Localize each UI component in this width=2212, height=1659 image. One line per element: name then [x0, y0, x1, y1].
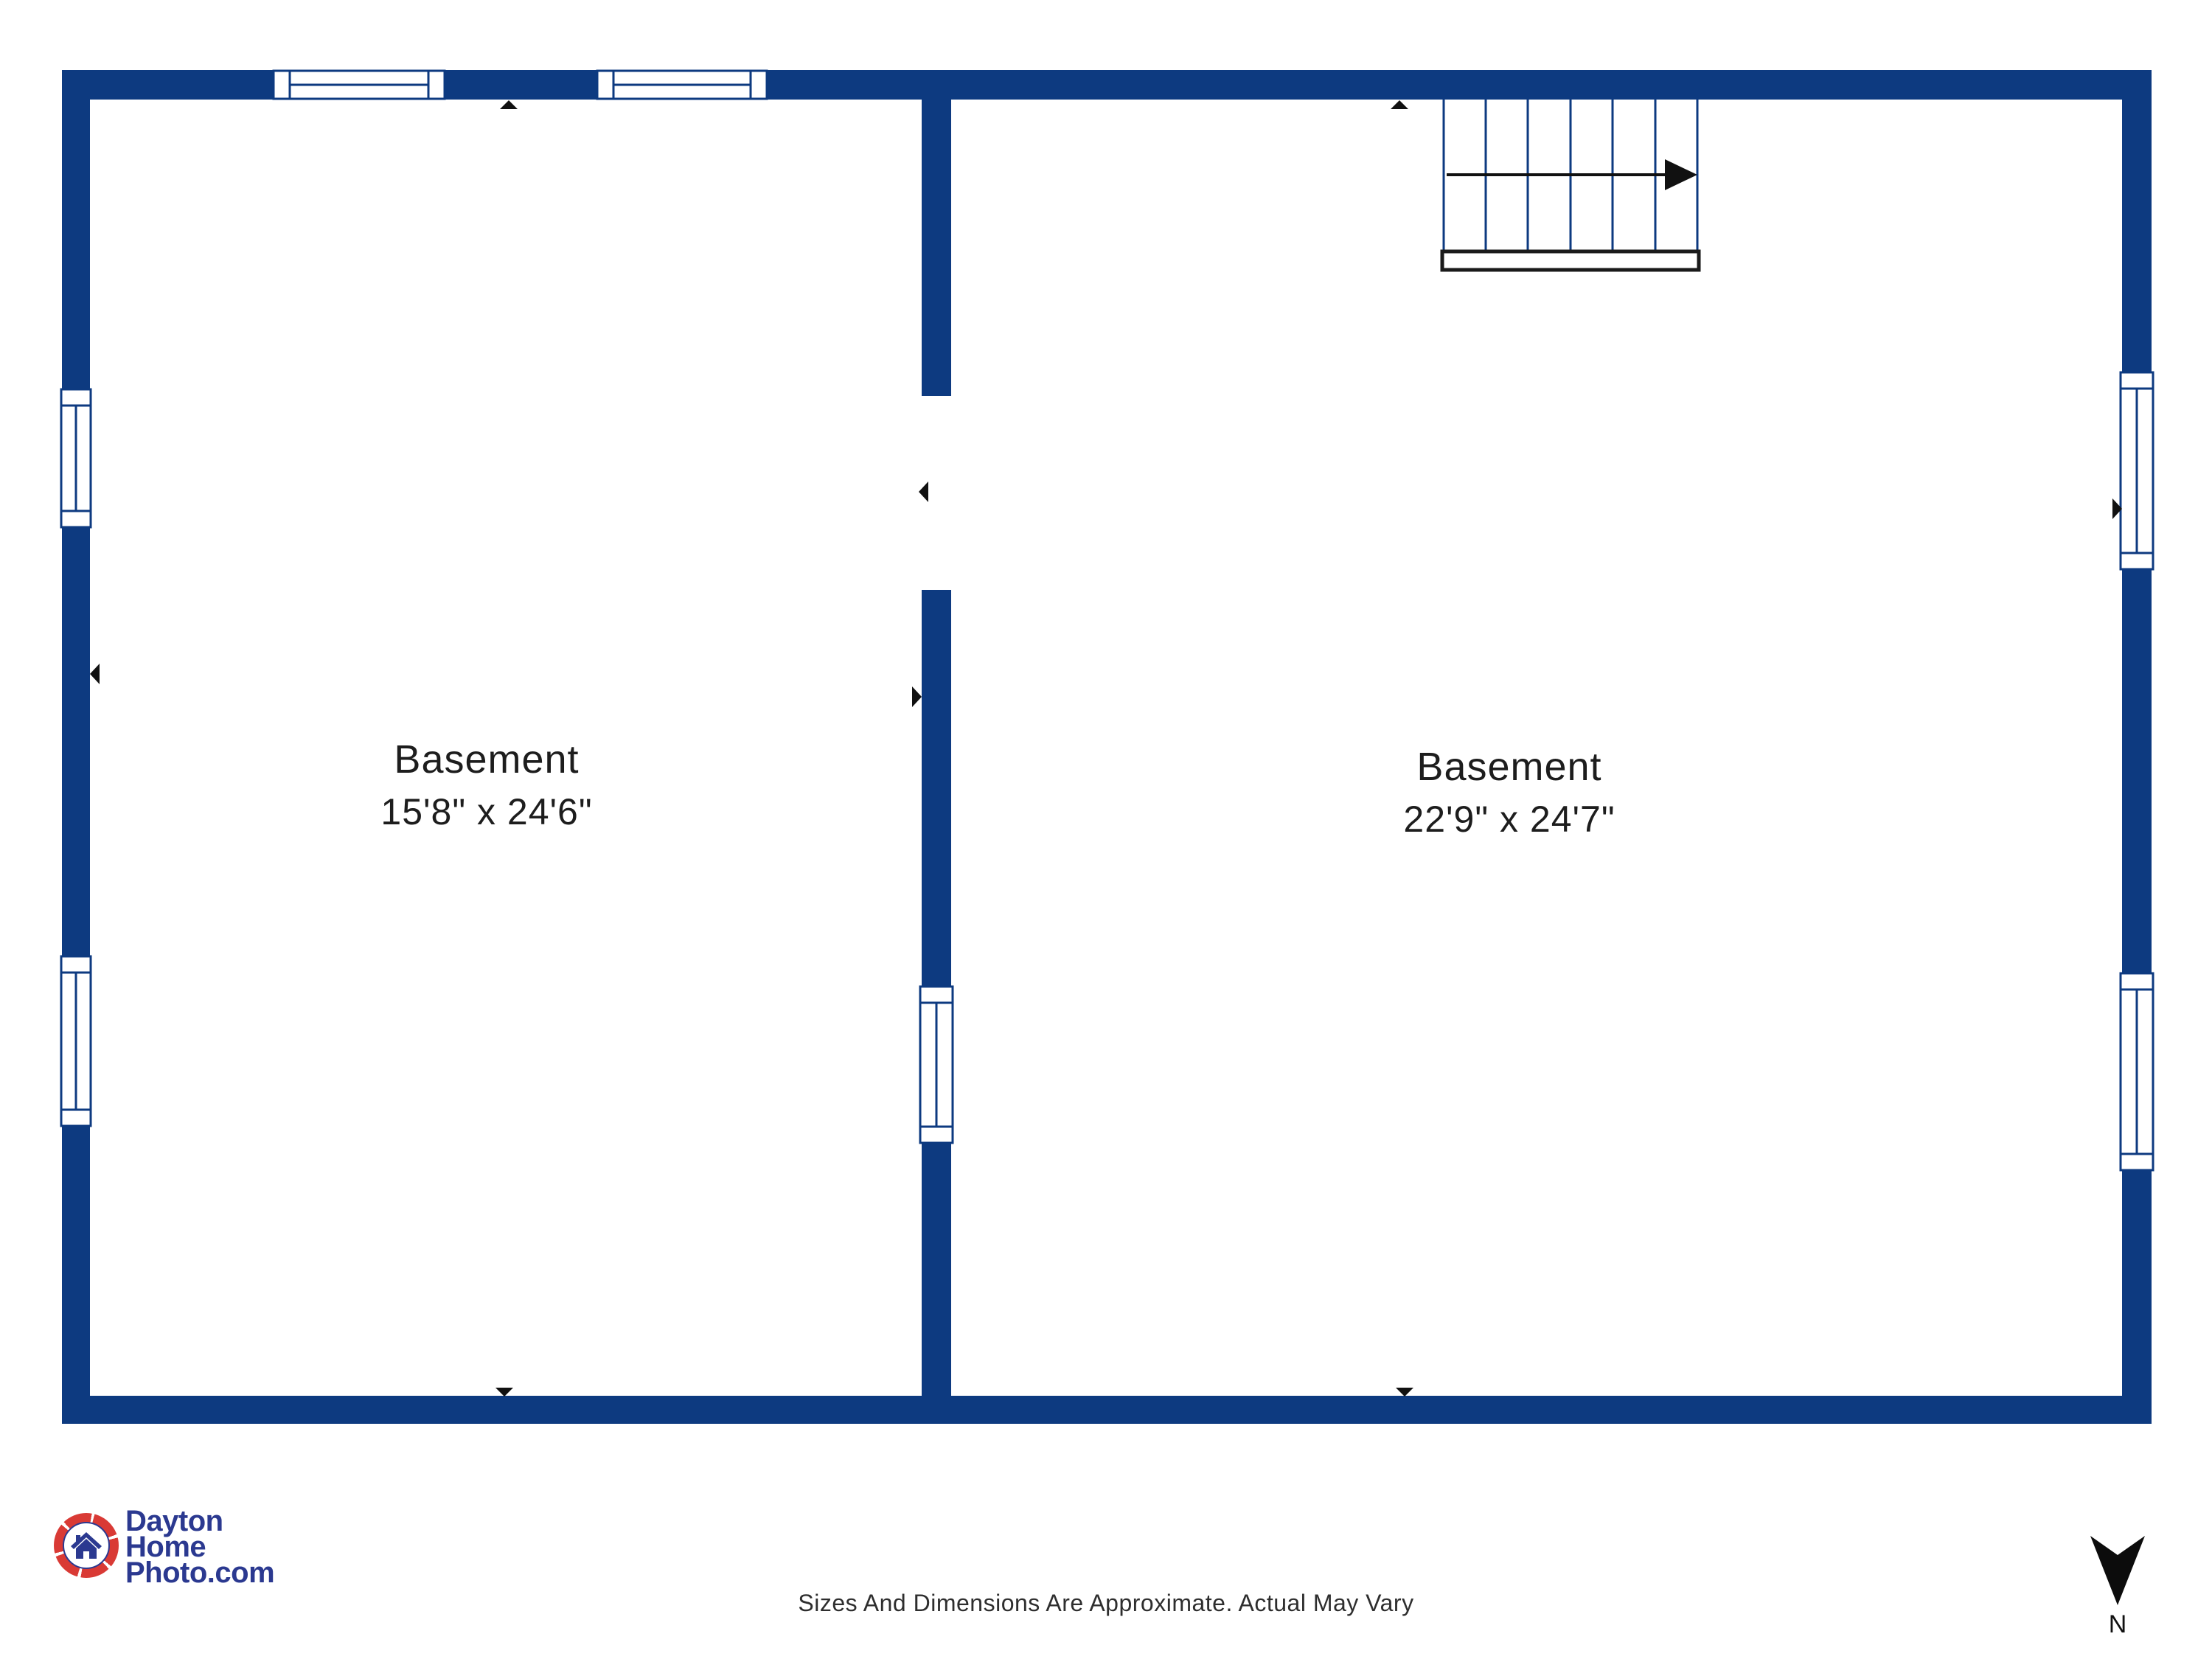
compass-label: N — [2089, 1610, 2146, 1639]
wall-right — [2122, 70, 2152, 1424]
staircase-icon — [1442, 100, 1699, 270]
room-labels: Basement 15'8" x 24'6" Basement 22'9" x … — [380, 737, 1615, 840]
dayton-home-photo-logo: Dayton Home Photo.com — [54, 1509, 305, 1590]
door-marker-left-icon — [90, 664, 100, 684]
door-marker-down-icon — [495, 1388, 513, 1397]
logo-line-3: Photo.com — [125, 1560, 274, 1586]
window-icon — [274, 71, 445, 99]
logo-wordmark: Dayton Home Photo.com — [125, 1509, 274, 1586]
room-2-dimensions: 22'9" x 24'7" — [1403, 799, 1615, 840]
window-icon — [920, 987, 953, 1143]
window-icon — [597, 71, 767, 99]
north-compass: N — [2089, 1536, 2146, 1639]
stair-direction-arrow-icon — [1447, 159, 1697, 190]
wall-middle-upper — [922, 70, 951, 396]
windows — [61, 71, 2153, 1170]
window-icon — [2121, 973, 2153, 1170]
door-marker-up-icon — [500, 100, 518, 109]
house-icon — [63, 1522, 110, 1569]
room-1-dimensions: 15'8" x 24'6" — [380, 791, 592, 832]
wall-left — [62, 70, 90, 1424]
floor-plan-page: Basement 15'8" x 24'6" Basement 22'9" x … — [0, 0, 2212, 1659]
window-icon — [61, 956, 91, 1126]
door-marker-up-icon — [1391, 100, 1408, 109]
stair-landing — [1442, 251, 1699, 270]
disclaimer-text: Sizes And Dimensions Are Approximate. Ac… — [0, 1590, 2212, 1617]
floor-plan-drawing: Basement 15'8" x 24'6" Basement 22'9" x … — [0, 0, 2212, 1659]
window-icon — [61, 389, 91, 527]
room-1-name: Basement — [394, 737, 579, 782]
room-2-name: Basement — [1416, 745, 1601, 789]
window-icon — [2121, 372, 2153, 569]
walls — [62, 70, 2152, 1424]
door-marker-down-icon — [1396, 1388, 1413, 1397]
door-marker-left-icon — [919, 481, 928, 502]
camera-shutter-icon — [54, 1513, 119, 1578]
north-arrow-icon — [2090, 1536, 2145, 1605]
door-marker-right-icon — [912, 686, 922, 707]
wall-bottom — [62, 1396, 2152, 1424]
